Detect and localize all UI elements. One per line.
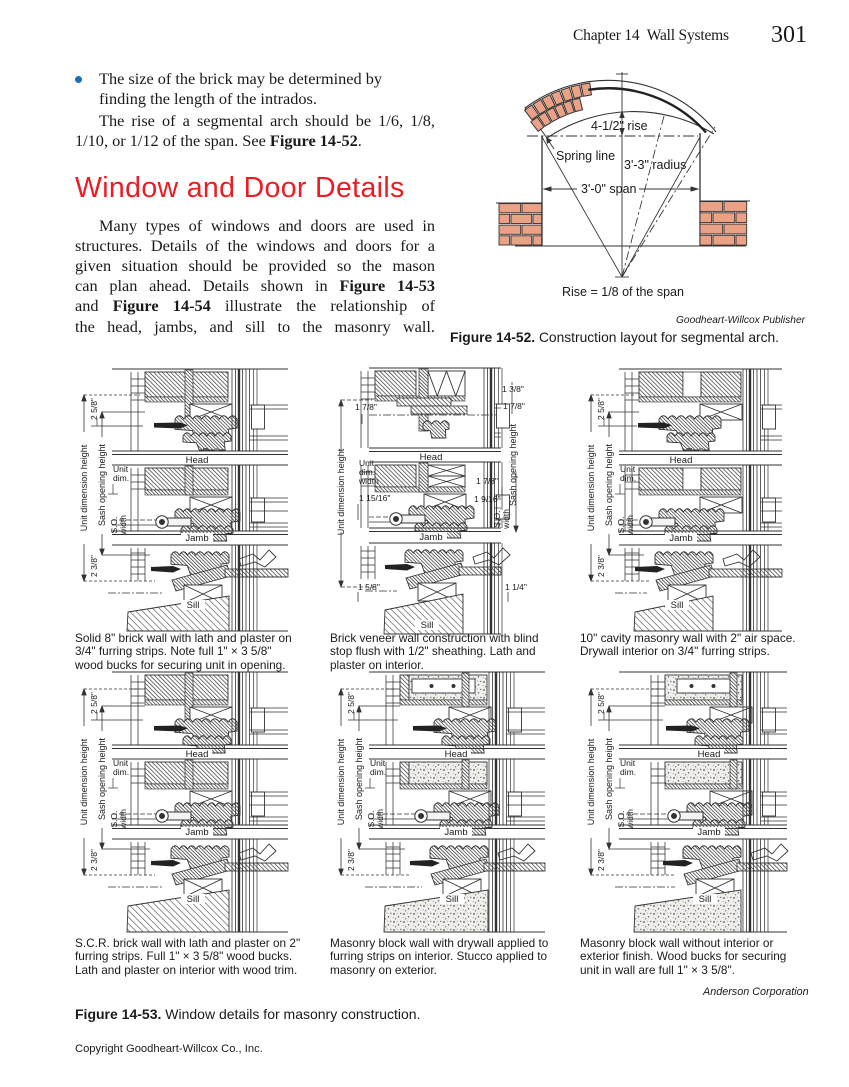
svg-text:2 3/8": 2 3/8"	[596, 849, 606, 871]
svg-text:Sill: Sill	[699, 894, 712, 905]
svg-text:3'-3" radius: 3'-3" radius	[624, 158, 686, 172]
svg-text:Sill: Sill	[421, 620, 434, 631]
svg-text:1 7/8": 1 7/8"	[355, 402, 377, 412]
svg-text:width: width	[501, 509, 511, 530]
svg-text:Head: Head	[186, 455, 209, 466]
svg-text:dim.: dim.	[113, 473, 129, 483]
svg-text:2 5/8": 2 5/8"	[596, 398, 606, 420]
svg-text:1 3/8": 1 3/8"	[502, 384, 524, 394]
svg-text:Rise = 1/8 of the span: Rise = 1/8 of the span	[562, 285, 684, 299]
svg-text:3'-0" span: 3'-0" span	[581, 182, 637, 196]
svg-text:Jamb: Jamb	[669, 533, 692, 544]
svg-text:Head: Head	[698, 749, 721, 760]
svg-text:2 3/8": 2 3/8"	[89, 849, 99, 871]
svg-text:Sash opening height: Sash opening height	[604, 443, 614, 526]
svg-text:dim.: dim.	[620, 767, 636, 777]
svg-text:Sash opening height: Sash opening height	[508, 423, 518, 506]
svg-text:Unit dimension height: Unit dimension height	[336, 738, 346, 825]
svg-text:Unit dimension height: Unit dimension height	[79, 738, 89, 825]
svg-text:Sill: Sill	[446, 894, 459, 905]
svg-text:dim.: dim.	[620, 473, 636, 483]
svg-text:2 5/8": 2 5/8"	[89, 398, 99, 420]
svg-text:Sash opening height: Sash opening height	[604, 737, 614, 820]
svg-text:1 7/8": 1 7/8"	[503, 401, 525, 411]
svg-text:width: width	[118, 515, 128, 536]
svg-text:Spring line: Spring line	[556, 149, 615, 163]
svg-text:Unit dimension height: Unit dimension height	[336, 448, 346, 535]
svg-text:Sash opening height: Sash opening height	[97, 443, 107, 526]
svg-text:2 5/8": 2 5/8"	[346, 692, 356, 714]
svg-text:4-1/2" rise: 4-1/2" rise	[591, 119, 648, 133]
svg-text:Head: Head	[420, 452, 443, 463]
svg-text:Jamb: Jamb	[697, 827, 720, 838]
svg-text:1 15/16": 1 15/16"	[359, 493, 390, 503]
svg-text:Sash opening height: Sash opening height	[97, 737, 107, 820]
svg-text:Sash opening height: Sash opening height	[354, 737, 364, 820]
svg-text:Jamb: Jamb	[185, 533, 208, 544]
svg-text:2 3/8": 2 3/8"	[89, 555, 99, 577]
svg-text:Head: Head	[186, 749, 209, 760]
svg-text:width: width	[118, 809, 128, 830]
svg-text:Jamb: Jamb	[444, 827, 467, 838]
svg-text:Head: Head	[670, 455, 693, 466]
svg-text:Unit dimension height: Unit dimension height	[586, 444, 596, 531]
svg-text:1 7/8": 1 7/8"	[476, 476, 498, 486]
svg-text:Unit dimension height: Unit dimension height	[586, 738, 596, 825]
svg-text:2 3/8": 2 3/8"	[346, 849, 356, 871]
svg-text:width: width	[625, 809, 635, 830]
svg-text:Jamb: Jamb	[185, 827, 208, 838]
svg-text:dim.: dim.	[113, 767, 129, 777]
svg-text:2 3/8": 2 3/8"	[596, 555, 606, 577]
svg-text:Jamb: Jamb	[419, 532, 442, 543]
svg-text:Head: Head	[445, 749, 468, 760]
svg-text:width: width	[625, 515, 635, 536]
svg-text:Unit dimension height: Unit dimension height	[79, 444, 89, 531]
svg-text:width: width	[375, 809, 385, 830]
svg-text:dim.: dim.	[370, 767, 386, 777]
svg-text:2 5/8": 2 5/8"	[596, 692, 606, 714]
svg-text:Sill: Sill	[671, 600, 684, 611]
svg-text:2 5/8": 2 5/8"	[89, 692, 99, 714]
svg-text:1 9/16": 1 9/16"	[474, 494, 501, 504]
svg-text:Sill: Sill	[187, 894, 200, 905]
svg-text:1 1/4": 1 1/4"	[505, 582, 527, 592]
svg-text:width: width	[358, 476, 379, 486]
svg-text:Sill: Sill	[187, 600, 200, 611]
